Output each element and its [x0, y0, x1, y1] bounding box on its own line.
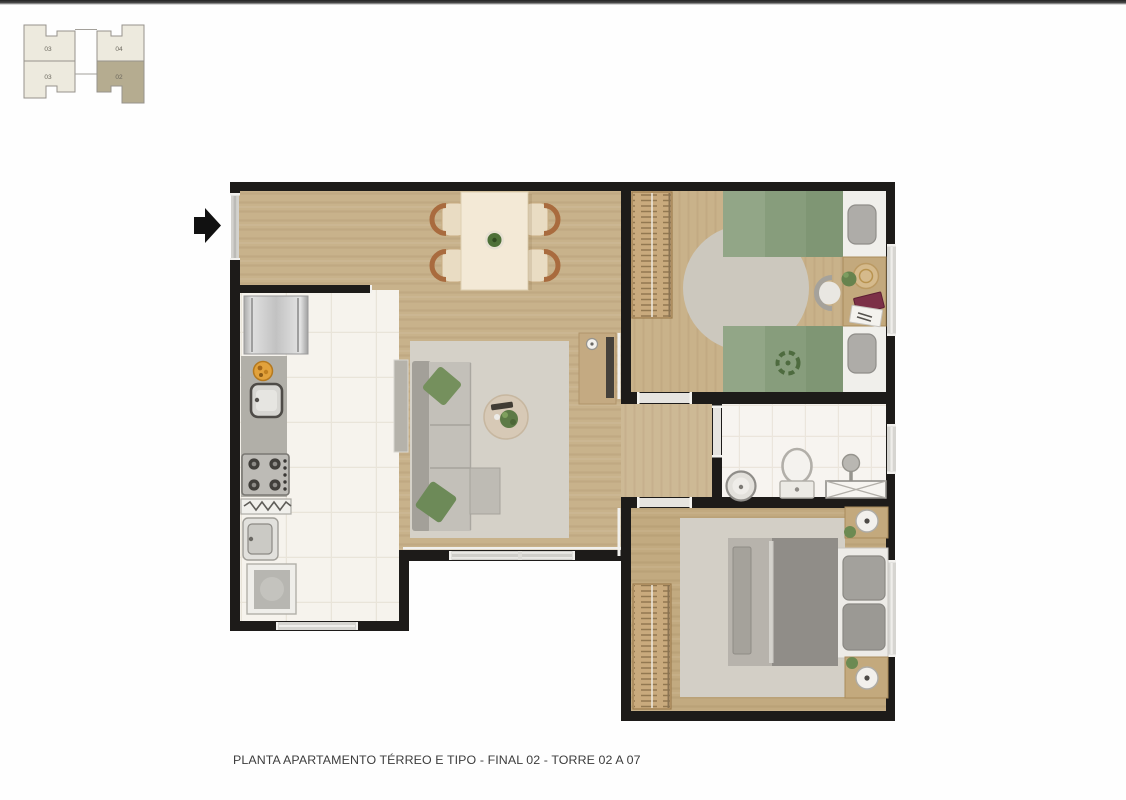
- svg-text:04: 04: [115, 46, 123, 53]
- svg-text:PLANTA APARTAMENTO TÉRREO E TI: PLANTA APARTAMENTO TÉRREO E TIPO - FINAL…: [233, 752, 641, 767]
- svg-text:03: 03: [44, 46, 52, 53]
- svg-text:03: 03: [44, 74, 52, 81]
- svg-text:02: 02: [115, 74, 123, 81]
